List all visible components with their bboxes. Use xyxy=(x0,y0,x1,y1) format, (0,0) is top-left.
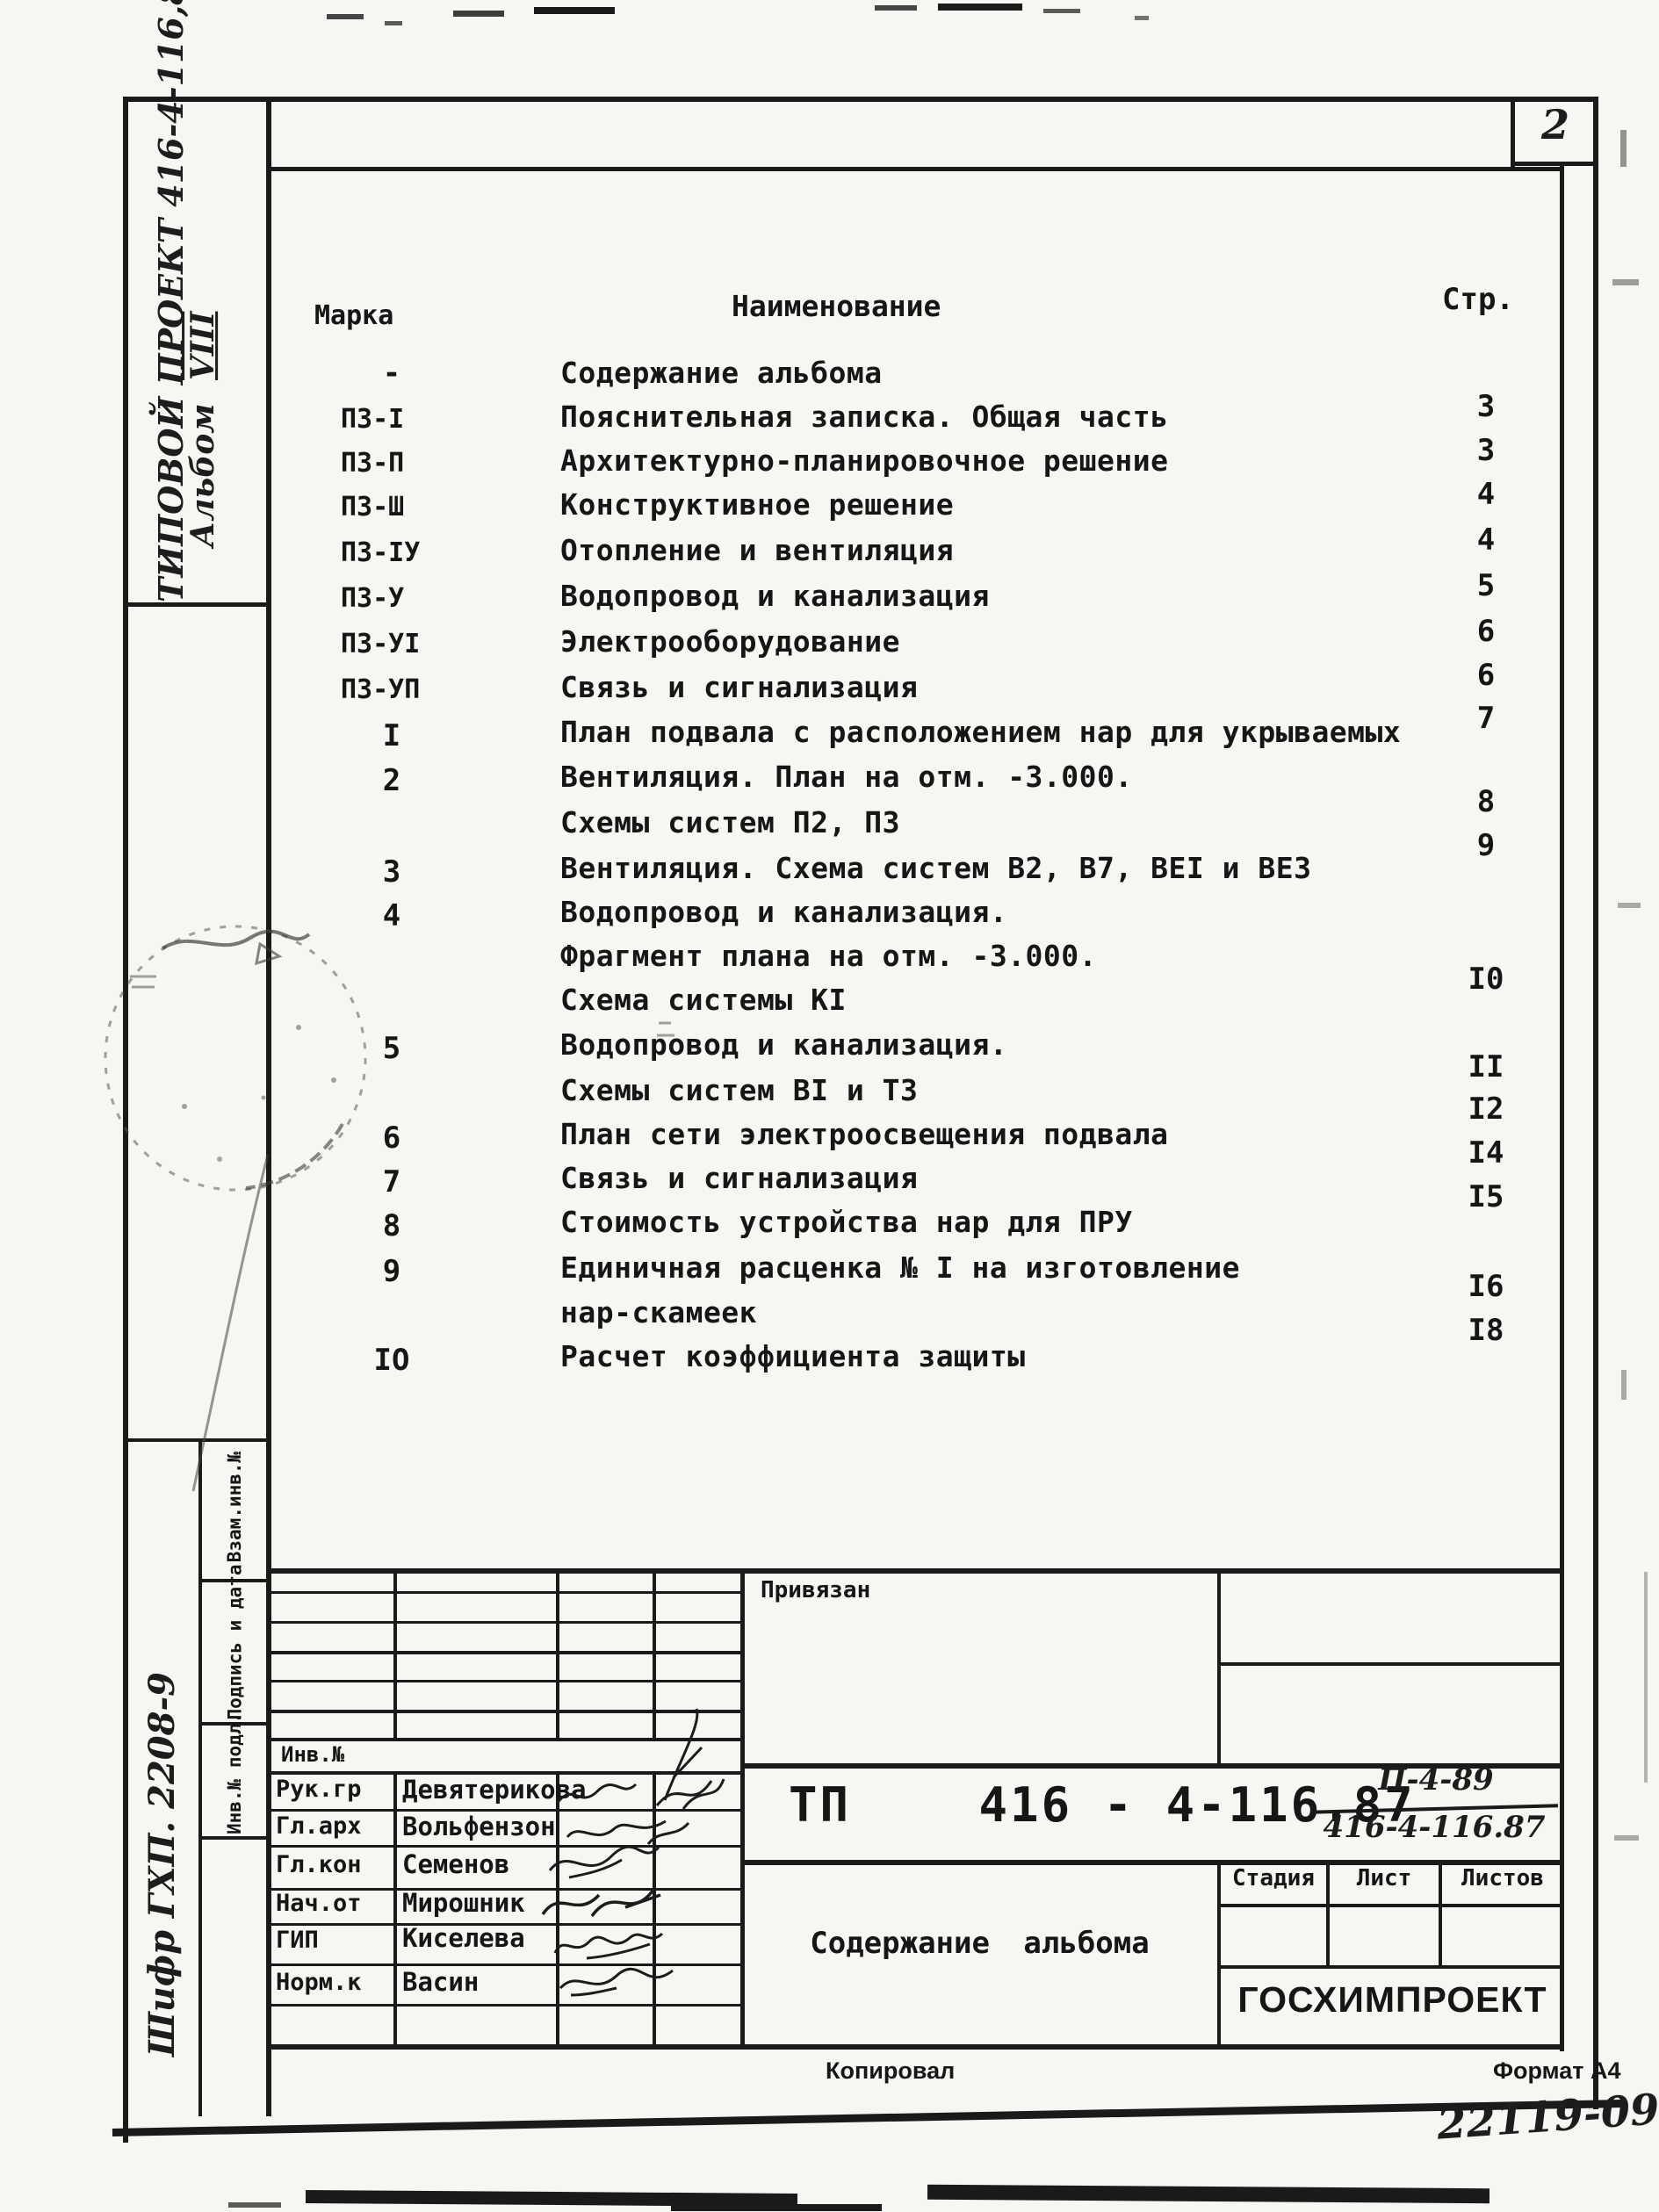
toc-row-page: I2 xyxy=(1451,1094,1521,1126)
toc-row-page: II xyxy=(1451,1052,1521,1084)
sign-role: Норм.к xyxy=(276,1971,362,1995)
toc-row-name: Фрагмент плана на отм. -3.000. xyxy=(560,941,1097,972)
frame-right-outer xyxy=(1593,97,1598,2109)
toc-row-marka: 2 xyxy=(367,766,416,797)
album-word: Альбом xyxy=(184,404,221,548)
grid-line xyxy=(1217,1965,1564,1969)
grid-line xyxy=(266,1591,745,1594)
sheets-label: Листов xyxy=(1442,1867,1563,1891)
sign-name: Мирошник xyxy=(402,1890,525,1916)
signature xyxy=(543,1841,666,1883)
toc-row-marka: ПЗ-УП xyxy=(341,676,420,704)
scan-artifact xyxy=(1614,1835,1639,1841)
toc-row-name: План подвала с расположением нар для укр… xyxy=(560,717,1401,748)
scan-artifact xyxy=(385,21,402,25)
round-stamp xyxy=(79,896,430,1528)
copied-label: Копировал xyxy=(826,2058,955,2083)
toc-row-marka: ПЗ-УI xyxy=(341,630,420,659)
toc-row-name: Водопровод и канализация. xyxy=(560,1030,1007,1061)
organization-name: ГОСХИМПРОЕКТ xyxy=(1221,1981,1564,2019)
toc-row-page: 3 xyxy=(1451,436,1521,467)
grid-line xyxy=(393,1568,397,1740)
scan-artifact xyxy=(1135,16,1149,20)
side-project-label: ТИПОВОЙ ПРОЕКТ 416-4-116,87 xyxy=(154,97,189,602)
signature xyxy=(548,1921,671,1962)
toc-row-page: I8 xyxy=(1451,1315,1521,1347)
sign-role: Рук.гр xyxy=(276,1777,362,1802)
scan-artifact xyxy=(671,2204,882,2211)
scan-artifact xyxy=(1644,1572,1648,1783)
fraction-top: П-4-89 xyxy=(1313,1765,1559,1797)
toc-row-name: План сети электроосвещения подвала xyxy=(560,1120,1169,1150)
toc-row-name: Вентиляция. План на отм. -3.000. xyxy=(560,762,1133,793)
toc-row-name: Отопление и вентиляция xyxy=(560,536,954,566)
album-number: VIII xyxy=(184,312,221,380)
toc-row-name: Электрооборудование xyxy=(560,627,900,658)
toc-row-marka: ПЗ-П xyxy=(341,450,404,478)
pagenum-box-left xyxy=(1511,97,1515,167)
scan-artifact xyxy=(1620,130,1627,167)
page-number: 2 xyxy=(1525,104,1586,146)
inv-podl-label: Инв.№ подл. xyxy=(225,1720,244,1834)
scan-artifact xyxy=(327,14,364,19)
toc-row-page: I0 xyxy=(1451,964,1521,996)
toc-row-marka: ПЗ-I xyxy=(341,406,404,434)
toc-row-page: I5 xyxy=(1451,1182,1521,1214)
sign-role: Нач.от xyxy=(276,1891,362,1916)
scan-artifact xyxy=(927,2185,1489,2203)
toc-row-marka: - xyxy=(367,358,416,390)
toc-row-name: Стоимость устройства нар для ПРУ xyxy=(560,1207,1133,1238)
grid-line xyxy=(266,1680,745,1682)
scanned-document-page: 2 ТИПОВОЙ ПРОЕКТ 416-4-116,87 Альбом VII… xyxy=(0,0,1659,2212)
scan-artifact xyxy=(1043,9,1080,13)
toc-row-name: Схемы систем П2, П3 xyxy=(560,808,900,839)
toc-header-page: Стр. xyxy=(1442,285,1514,316)
grid-line xyxy=(556,1568,559,1740)
grid-line xyxy=(266,1621,745,1624)
toc-header-name: Наименование xyxy=(732,292,941,322)
toc-row-marka: ПЗ-У xyxy=(341,585,404,613)
privyazan-label: Привязан xyxy=(761,1579,870,1603)
fraction-bottom: 416-4-116.87 xyxy=(1307,1812,1562,1844)
toc-row-page: 9 xyxy=(1451,831,1521,862)
format-label: Формат А4 xyxy=(1493,2058,1621,2083)
grid-line xyxy=(266,1651,745,1654)
side-cell-divider xyxy=(198,1836,270,1840)
sign-role: ГИП xyxy=(276,1928,319,1953)
content-frame-top xyxy=(266,167,1564,171)
toc-row-page: 6 xyxy=(1451,660,1521,692)
toc-row-name: Содержание альбома xyxy=(560,358,883,389)
toc-row-page: I4 xyxy=(1451,1138,1521,1170)
doc-prefix: ТП xyxy=(789,1777,851,1833)
sign-role: Гл.кон xyxy=(276,1853,362,1877)
toc-row-name: Схема системы КI xyxy=(560,985,847,1016)
side-album-label: Альбом VIII xyxy=(187,177,220,682)
sign-name: Киселева xyxy=(402,1925,525,1951)
toc-row-marka: ПЗ-Ш xyxy=(341,494,404,522)
toc-row-marka: 3 xyxy=(367,857,416,889)
footer-code: 22119-09 xyxy=(1436,2087,1659,2147)
signature xyxy=(555,1963,678,2002)
toc-row-name: Архитектурно-планировочное решение xyxy=(560,446,1169,477)
toc-row-name: Связь и сигнализация xyxy=(560,673,918,703)
cipher-label: Шифр ГХП. 2208-9 xyxy=(144,1662,181,2066)
scan-artifact xyxy=(228,2202,281,2208)
toc-row-marka: ПЗ-IУ xyxy=(341,539,420,567)
sign-role: Гл.арх xyxy=(276,1814,362,1839)
signature xyxy=(654,1704,716,1805)
doc-title: Содержание альбома xyxy=(742,1928,1217,1960)
frame-top-outer xyxy=(123,97,1598,102)
toc-row-page: 4 xyxy=(1451,525,1521,557)
toc-row-name: Расчет коэффициента защиты xyxy=(560,1342,1026,1373)
toc-row-name: нар-скамеек xyxy=(560,1298,757,1329)
frame-bottom-edge xyxy=(112,2100,1623,2136)
scan-artifact xyxy=(1621,1370,1627,1400)
scan-artifact xyxy=(453,11,504,17)
toc-header-marka: Марка xyxy=(314,302,393,330)
sign-name: Васин xyxy=(402,1969,479,1995)
scan-artifact xyxy=(534,7,615,14)
scan-artifact xyxy=(1612,279,1639,285)
toc-row-page: 7 xyxy=(1451,703,1521,735)
toc-row-page: I6 xyxy=(1451,1272,1521,1303)
scan-artifact xyxy=(1618,903,1641,908)
toc-row-name: Вентиляция. Схема систем В2, В7, ВЕI и В… xyxy=(560,854,1311,884)
toc-row-name: Водопровод и канализация. xyxy=(560,897,1007,928)
grid-line xyxy=(1217,1662,1564,1666)
toc-row-marka: I xyxy=(367,721,416,753)
grid-line xyxy=(1217,1904,1564,1907)
scan-artifact xyxy=(938,4,1022,11)
toc-row-page: 5 xyxy=(1451,571,1521,602)
titleblock-bottom xyxy=(266,2044,1564,2050)
toc-row-page: 3 xyxy=(1451,392,1521,423)
stage-label: Стадия xyxy=(1221,1867,1326,1891)
toc-row-name: Пояснительная записка. Общая часть xyxy=(560,402,1169,433)
sign-name: Семенов xyxy=(402,1851,509,1877)
sign-name: Вольфензон xyxy=(402,1813,556,1840)
toc-row-name: Связь и сигнализация xyxy=(560,1164,918,1194)
grid-line xyxy=(266,2004,745,2007)
side-inner-vertical xyxy=(198,1438,202,2116)
inv-number-label: Инв.№ xyxy=(281,1744,344,1766)
podpis-data-label: Подпись и дата xyxy=(225,1577,244,1720)
pagenum-box-bottom xyxy=(1511,162,1598,166)
grid-line xyxy=(1217,1568,1221,1767)
titleblock-top xyxy=(266,1568,1564,1574)
sheet-label: Лист xyxy=(1330,1867,1439,1891)
toc-row-name: Конструктивное решение xyxy=(560,490,954,521)
toc-row-name: Водопровод и канализация xyxy=(560,581,990,612)
toc-row-page: 6 xyxy=(1451,616,1521,648)
scan-artifact xyxy=(875,5,917,11)
toc-row-page: 8 xyxy=(1451,787,1521,818)
toc-row-name: Схемы систем ВI и Т3 xyxy=(560,1076,918,1106)
signature xyxy=(537,1881,669,1925)
toc-row-name: Единичная расценка № I на изготовление xyxy=(560,1253,1240,1284)
toc-row-page: 4 xyxy=(1451,479,1521,511)
